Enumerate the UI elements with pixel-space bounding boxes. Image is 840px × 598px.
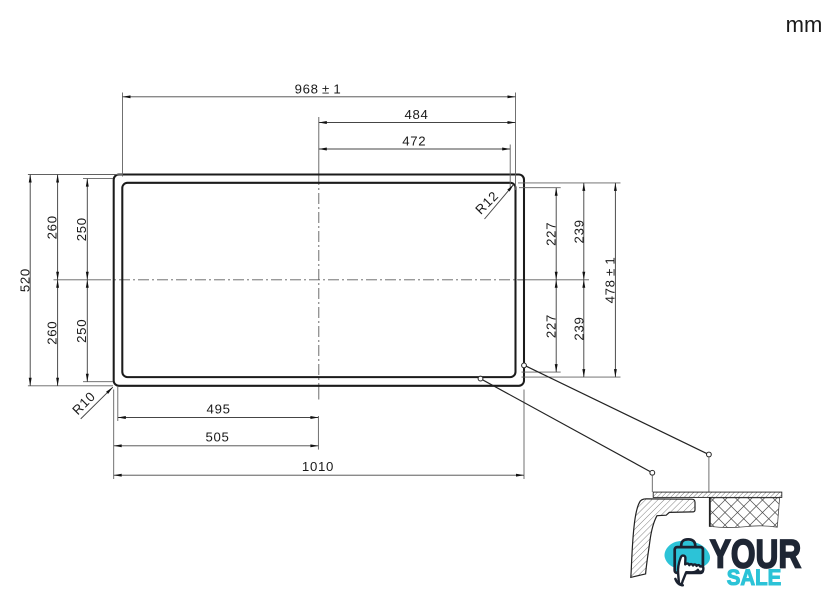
svg-text:484: 484 — [404, 107, 428, 122]
svg-text:260: 260 — [44, 321, 59, 345]
svg-text:250: 250 — [74, 217, 89, 241]
svg-text:505: 505 — [205, 430, 229, 445]
svg-text:R10: R10 — [69, 389, 98, 418]
svg-text:478 ± 1: 478 ± 1 — [603, 257, 618, 304]
svg-text:1010: 1010 — [302, 459, 334, 474]
svg-text:472: 472 — [402, 134, 426, 149]
svg-text:R12: R12 — [472, 188, 501, 217]
svg-text:968 ± 1: 968 ± 1 — [295, 82, 342, 97]
svg-text:495: 495 — [207, 402, 231, 417]
svg-text:250: 250 — [74, 319, 89, 343]
svg-text:260: 260 — [44, 215, 59, 239]
svg-text:239: 239 — [571, 219, 586, 243]
svg-text:227: 227 — [544, 314, 559, 338]
svg-text:SALE: SALE — [727, 565, 782, 590]
svg-text:227: 227 — [544, 222, 559, 246]
svg-text:520: 520 — [18, 268, 33, 292]
svg-text:239: 239 — [571, 316, 586, 340]
svg-text:mm: mm — [786, 12, 823, 37]
